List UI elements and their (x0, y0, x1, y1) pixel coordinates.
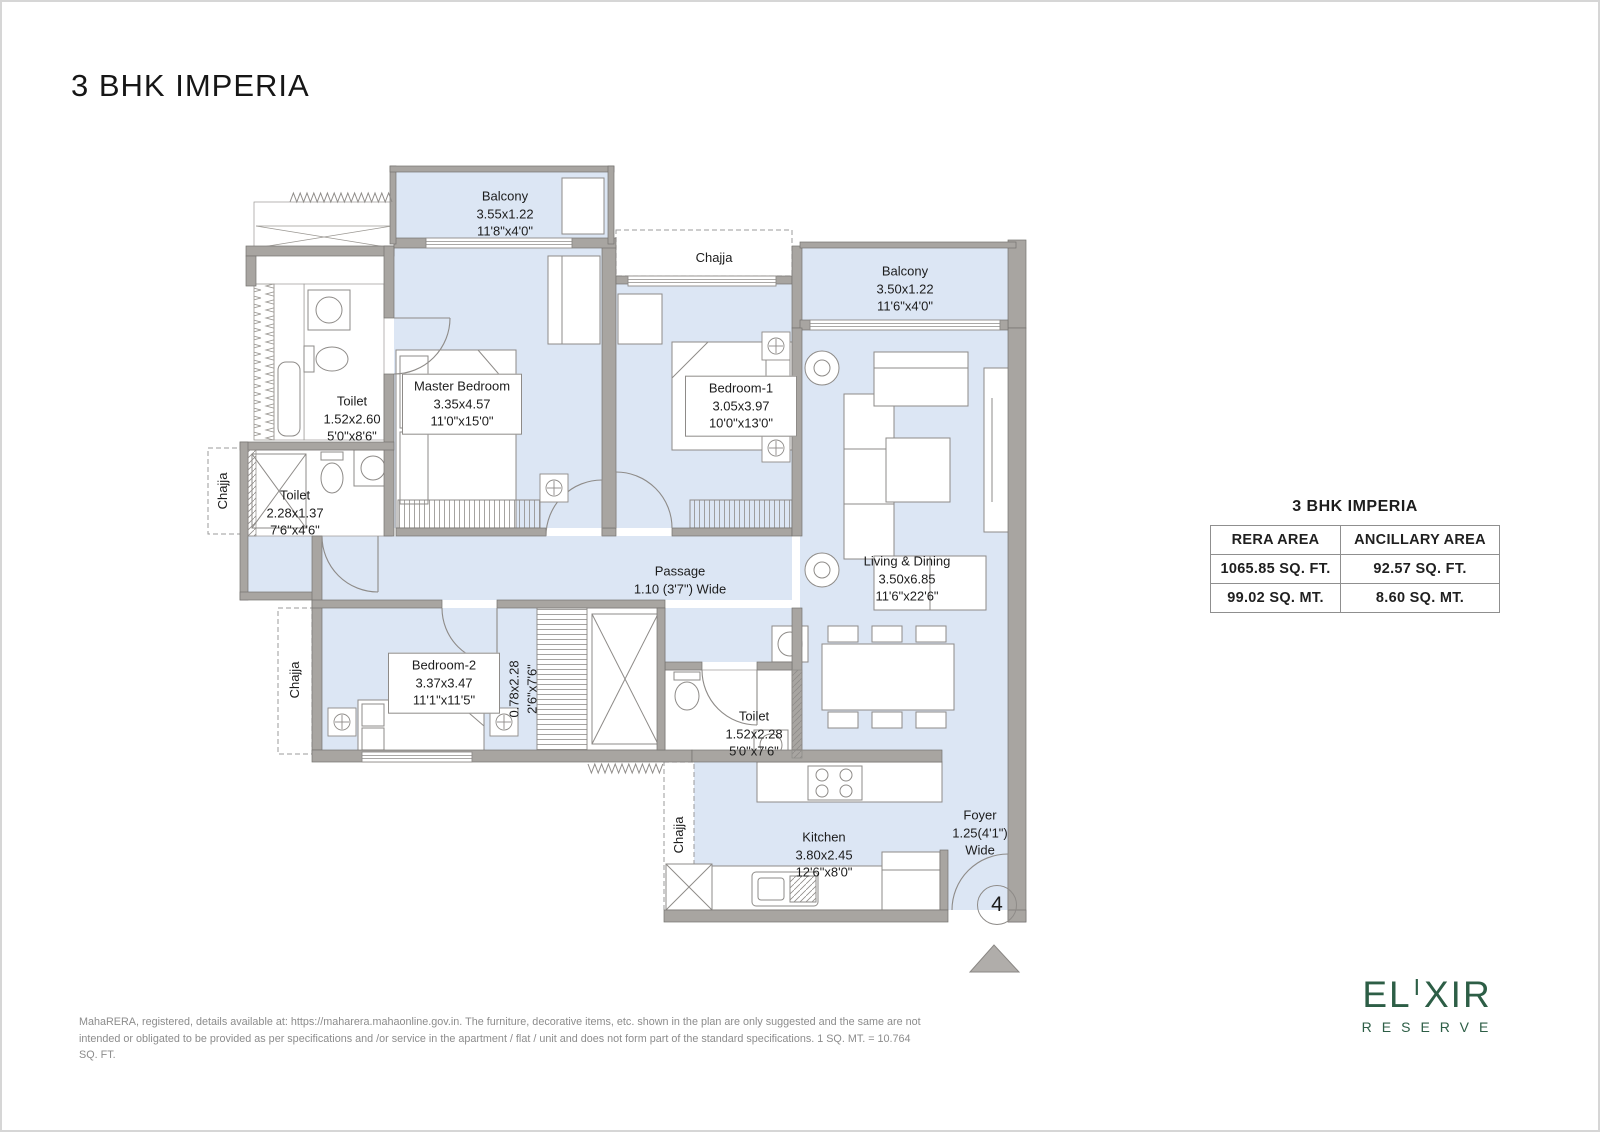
label-chajja-left-lower: Chajja (286, 662, 304, 699)
sliding-wardrobe-hatch (537, 608, 587, 750)
brand-logo: ELIXIR RESERVE (1346, 974, 1508, 1035)
area-table-title: 3 BHK IMPERIA (1210, 498, 1500, 516)
label-chajja-left: Chajja (214, 473, 232, 510)
page: 3 BHK IMPERIA (0, 0, 1600, 1132)
brand-tagline: RESERVE (1346, 1019, 1508, 1035)
ancillary-area-sqmt: 8.60 SQ. MT. (1341, 584, 1500, 613)
disclaimer-text: MahaRERA, registered, details available … (79, 1014, 925, 1064)
label-foyer: Foyer 1.25(4'1") Wide (952, 807, 1008, 860)
railing-strip (254, 284, 274, 440)
label-bedroom-2: Bedroom-2 3.37x3.47 11'1"x11'5" (388, 653, 500, 714)
label-passage: Passage 1.10 (3'7") Wide (634, 562, 726, 597)
area-table: 3 BHK IMPERIA RERA AREA ANCILLARY AREA 1… (1210, 498, 1500, 613)
label-toilet-bed2: Toilet 1.52x2.28 5'0"x7'6" (725, 708, 782, 761)
label-living-dining: Living & Dining 3.50x6.85 11'6"x22'6" (864, 553, 951, 606)
label-balcony-top: Balcony 3.55x1.22 11'8"x4'0" (476, 188, 533, 241)
label-toilet-master: Toilet 1.52x2.60 5'0"x8'6" (323, 393, 380, 446)
ancillary-area-sqft: 92.57 SQ. FT. (1341, 555, 1500, 584)
label-master-bedroom: Master Bedroom 3.35x4.57 11'0"x15'0" (402, 374, 522, 435)
brand-name: ELIXIR (1346, 974, 1508, 1016)
unit-number-badge: 4 (977, 885, 1017, 925)
label-kitchen: Kitchen 3.80x2.45 12'6"x8'0" (795, 829, 852, 882)
entrance-arrow (970, 945, 1019, 972)
label-wardrobe-dims: 0.78x2.28 2'6"x7'6" (505, 660, 540, 717)
label-balcony-right: Balcony 3.50x1.22 11'6"x4'0" (876, 263, 933, 316)
table-row: 1065.85 SQ. FT. 92.57 SQ. FT. (1211, 555, 1500, 584)
table-header-row: RERA AREA ANCILLARY AREA (1211, 526, 1500, 555)
label-chajja-top: Chajja (696, 249, 733, 267)
ancillary-area-header: ANCILLARY AREA (1341, 526, 1500, 555)
table-row: 99.02 SQ. MT. 8.60 SQ. MT. (1211, 584, 1500, 613)
label-bedroom-1: Bedroom-1 3.05x3.97 10'0"x13'0" (685, 376, 797, 437)
rera-area-sqft: 1065.85 SQ. FT. (1211, 555, 1341, 584)
rera-area-sqmt: 99.02 SQ. MT. (1211, 584, 1341, 613)
rera-area-header: RERA AREA (1211, 526, 1341, 555)
label-chajja-bottom: Chajja (670, 817, 688, 854)
label-toilet-common: Toilet 2.28x1.37 7'6"x4'6" (266, 487, 323, 540)
